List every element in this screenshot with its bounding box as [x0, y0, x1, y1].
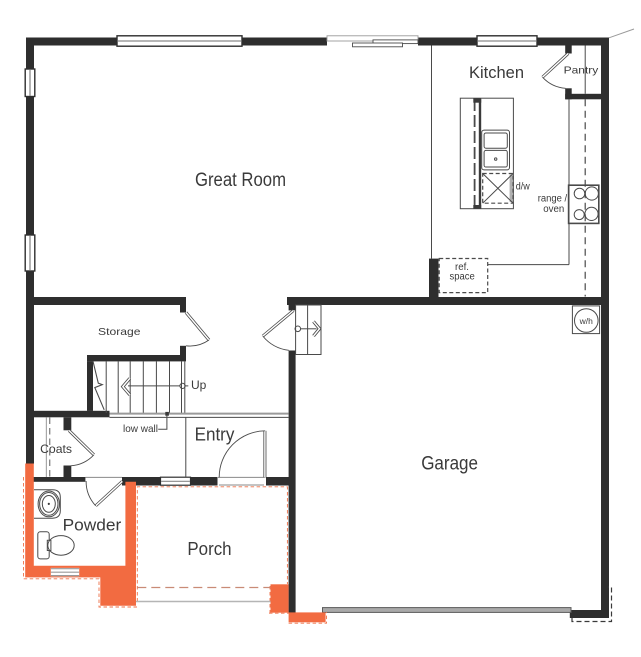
svg-text:d/w: d/w — [516, 182, 531, 193]
svg-text:Up: Up — [191, 378, 207, 392]
svg-text:Entry: Entry — [195, 424, 235, 444]
svg-text:Powder: Powder — [63, 516, 122, 534]
svg-text:w/h: w/h — [579, 316, 594, 326]
svg-text:low wall: low wall — [123, 423, 158, 435]
svg-text:Garage: Garage — [421, 454, 478, 475]
svg-text:range /: range / — [538, 194, 568, 205]
svg-text:oven: oven — [543, 204, 564, 215]
svg-text:space: space — [450, 271, 476, 282]
svg-text:Porch: Porch — [187, 539, 231, 559]
svg-text:Storage: Storage — [98, 326, 141, 338]
svg-text:Great Room: Great Room — [195, 170, 286, 191]
svg-text:Coats: Coats — [40, 442, 72, 456]
svg-text:Kitchen: Kitchen — [469, 64, 524, 82]
svg-text:Pantry: Pantry — [564, 65, 600, 77]
